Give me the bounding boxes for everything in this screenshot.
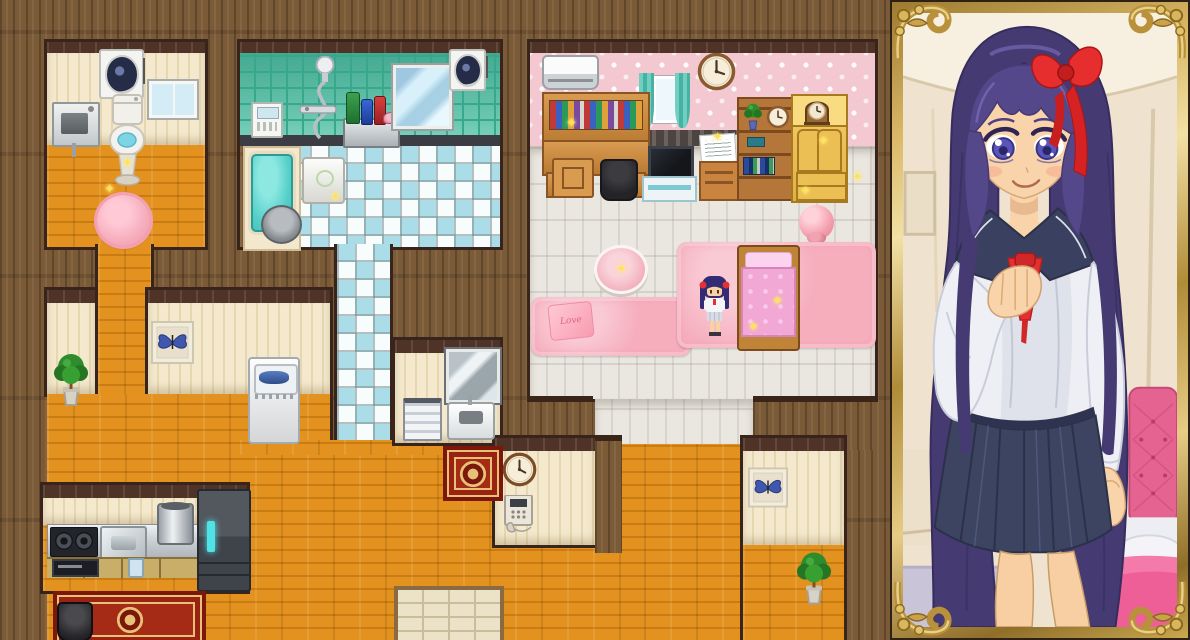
- tv-stand: [642, 176, 697, 202]
- doorway-floor: [618, 444, 745, 640]
- sparkle-icon: ✦: [566, 116, 577, 129]
- portrait-illustration: [903, 13, 1177, 627]
- fan-cord: [486, 56, 488, 78]
- hall-wall-clock: [502, 452, 537, 487]
- wall-phone[interactable]: [503, 495, 534, 535]
- toilet-room-window: [149, 81, 197, 118]
- wall-sink[interactable]: [52, 102, 100, 147]
- gas-stove[interactable]: [50, 527, 98, 557]
- character-sprite[interactable]: [697, 273, 732, 338]
- sparkle-icon: ✦: [852, 170, 863, 183]
- shampoo-bottle-green: [346, 92, 360, 124]
- sink-drain-pipe: [72, 143, 76, 157]
- kitchen-sink[interactable]: [100, 526, 147, 560]
- cup: [128, 558, 144, 578]
- pink-ball[interactable]: [799, 205, 834, 240]
- stone-entry-mat: [394, 586, 504, 640]
- desk-chair[interactable]: [552, 158, 594, 198]
- wall-trim: [148, 290, 330, 303]
- portrait-scene: [903, 13, 1177, 627]
- shelf-books: [743, 157, 775, 175]
- south-butterfly-picture: [748, 464, 788, 511]
- character-portrait-panel: [890, 0, 1190, 640]
- mantel-clock: [802, 96, 832, 125]
- nightstand: [699, 161, 739, 201]
- love-pillow: Love: [547, 301, 595, 341]
- sparkle-icon: ✦: [748, 320, 759, 333]
- game-screen: Love: [0, 0, 1190, 640]
- washer-window: [259, 371, 290, 384]
- sparkle-icon: ✦: [104, 182, 115, 195]
- trash-bin[interactable]: [600, 159, 638, 201]
- pink-round-rug: [97, 195, 150, 246]
- bed-frame[interactable]: [737, 245, 800, 351]
- fan-blade-icon: [105, 55, 139, 94]
- washer-controls: [255, 394, 293, 399]
- sparkle-icon: ✦: [122, 156, 133, 169]
- frame-corner-ornament: [894, 4, 952, 62]
- fan-cord: [143, 58, 145, 84]
- desk-hutch: [542, 92, 650, 146]
- south-potted-plant: [794, 545, 834, 607]
- shelf-book-teal: [747, 137, 765, 147]
- air-conditioner: [542, 55, 599, 90]
- frame-corner-ornament: [894, 578, 952, 636]
- curtain-right: [675, 73, 690, 128]
- towel-rack: [403, 398, 442, 441]
- oven: [52, 559, 99, 577]
- black-pot: [57, 602, 93, 640]
- hall-potted-plant: [51, 347, 91, 408]
- refrigerator[interactable]: [197, 489, 251, 592]
- bedroom-wall-clock: [697, 52, 736, 91]
- bookshelf-alarm-clock: [766, 104, 790, 130]
- washroom-mirror: [446, 349, 500, 403]
- shampoo-bottle-blue: [361, 99, 373, 125]
- shower[interactable]: [298, 56, 344, 146]
- frame-corner-ornament: [1128, 4, 1186, 62]
- ventilation-fan: [99, 49, 144, 99]
- desk-books: [549, 100, 643, 130]
- bathroom-mirror: [393, 65, 452, 129]
- sparkle-icon: ✦: [330, 190, 341, 203]
- bathroom-fan: [449, 49, 486, 91]
- washing-machine[interactable]: [248, 357, 300, 444]
- wall-trim: [47, 290, 95, 303]
- wall-trim: [495, 438, 595, 451]
- phone-nook-pillar: [595, 435, 622, 553]
- butterfly-picture: [151, 321, 194, 364]
- sparkle-icon: ✦: [616, 262, 627, 275]
- bookshelf-plant: [742, 99, 764, 131]
- bath-control-panel[interactable]: [251, 102, 283, 138]
- fan-blade-icon: [454, 54, 482, 87]
- wash-bucket[interactable]: [261, 205, 302, 244]
- house-map[interactable]: Love: [0, 0, 890, 640]
- stock-pot: [157, 503, 194, 545]
- sparkle-icon: ✦: [712, 130, 723, 143]
- sparkle-icon: ✦: [818, 134, 829, 147]
- wall-trim: [743, 438, 844, 451]
- washroom-sink[interactable]: [447, 402, 495, 440]
- pillow-text: Love: [560, 315, 583, 327]
- sparkle-icon: ✦: [772, 294, 783, 307]
- corridor-checker: [334, 244, 393, 455]
- hall-red-rug: [443, 446, 503, 501]
- toilet[interactable]: [105, 94, 150, 188]
- floor-strip: [593, 547, 622, 640]
- sparkle-icon: ✦: [800, 184, 811, 197]
- love-rug: Love: [531, 297, 691, 356]
- frame-corner-ornament: [1128, 578, 1186, 636]
